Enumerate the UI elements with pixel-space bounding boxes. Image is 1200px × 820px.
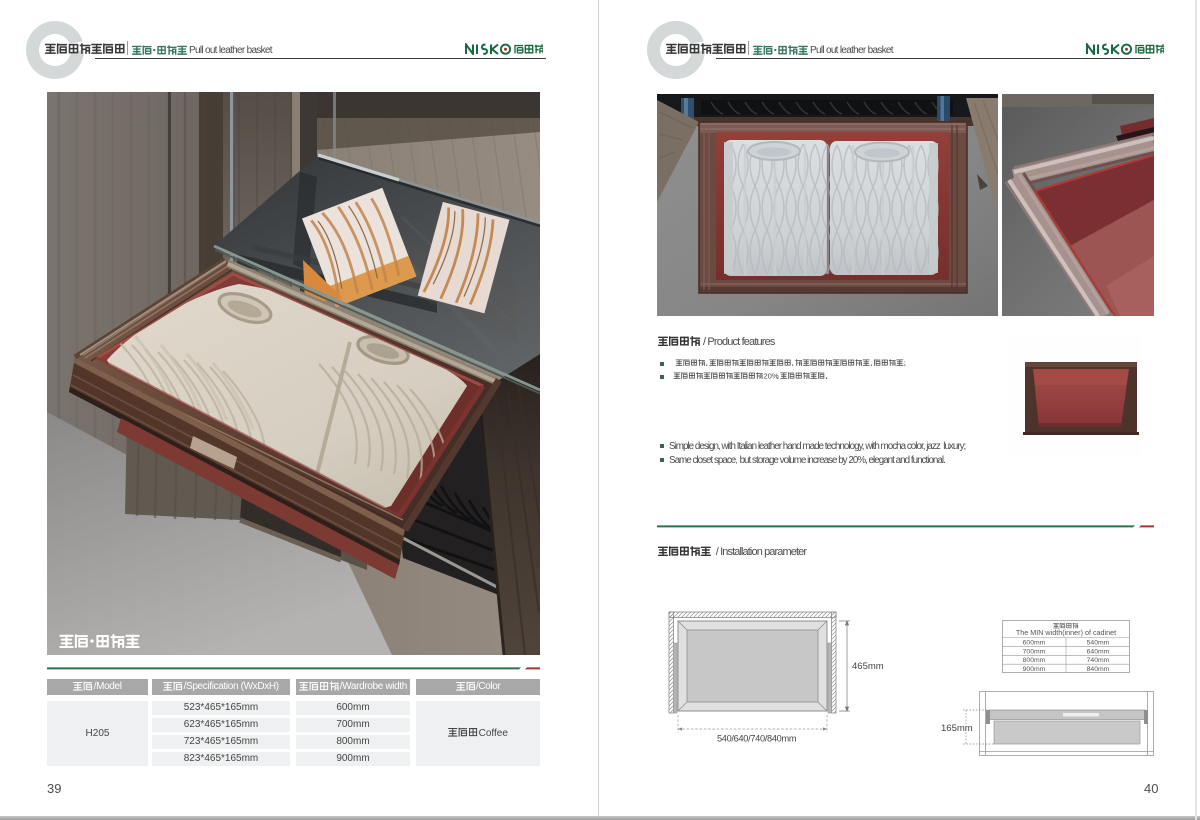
svg-text:800mm: 800mm: [1023, 657, 1046, 664]
svg-text:165mm: 165mm: [941, 723, 973, 734]
svg-text:740mm: 740mm: [1087, 657, 1110, 664]
svg-text:600mm: 600mm: [1023, 639, 1046, 646]
svg-text:640mm: 640mm: [1087, 648, 1110, 655]
svg-text:The MIN width(inner) of cadine: The MIN width(inner) of cadinet: [1016, 628, 1116, 637]
svg-text:20%: 20%: [763, 372, 779, 379]
svg-text:465mm: 465mm: [852, 661, 884, 672]
svg-text:900mm: 900mm: [1023, 666, 1046, 673]
svg-text:700mm: 700mm: [1023, 648, 1046, 655]
svg-text:840mm: 840mm: [1087, 666, 1110, 673]
svg-text:540mm: 540mm: [1087, 639, 1110, 646]
svg-text:540/640/740/840mm: 540/640/740/840mm: [717, 734, 797, 744]
